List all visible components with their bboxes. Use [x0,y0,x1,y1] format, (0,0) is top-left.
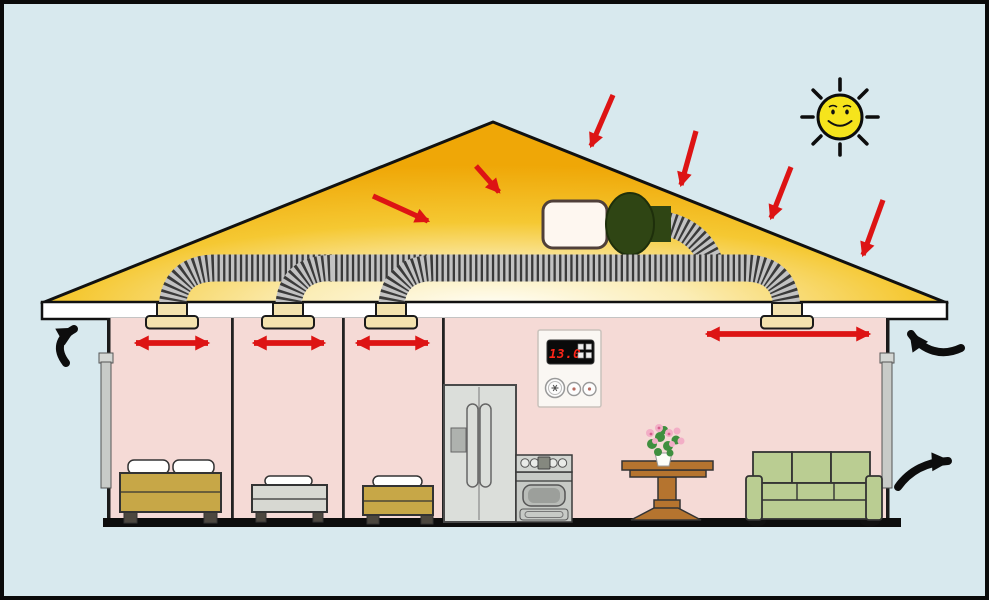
bed-leg [256,512,266,522]
bed-leg [124,512,137,523]
sofa-seat [760,483,870,519]
fan-housing-box [543,201,607,248]
attic-fan [606,193,654,255]
bed-leg [313,512,323,522]
thermostat-button-dot [572,387,575,390]
sun-eye [831,110,835,115]
burner-knob [521,459,529,467]
bed-leg [204,512,217,523]
table-pedestal [658,477,676,503]
thermostat-mini-button[interactable] [578,353,584,359]
left-downspout [99,353,113,488]
downspout-pipe [101,362,111,488]
thermostat-mini-button[interactable] [586,344,592,350]
sofa-back-cushion [792,452,831,483]
ceiling-vent-register [146,316,198,329]
house-cooling-diagram: 13.0 [0,0,989,600]
ceiling-vent-register [365,316,417,329]
thermostat: 13.0 [538,330,601,407]
pillow [128,460,169,474]
thermostat-display: 13.0 [549,346,581,361]
diagram-stage: 13.0 [0,0,989,600]
fridge-dispenser [451,428,466,452]
stove-drawer [520,509,568,520]
ceiling-vent-neck [772,303,802,317]
stove [516,455,572,522]
sofa-armrest [746,476,762,520]
oven-window-glass [528,488,560,503]
burner-knob [558,459,566,467]
thermostat-button-dot [588,387,591,390]
fridge-handle [480,404,491,487]
downspout-pipe [882,362,892,488]
thermostat-mini-button[interactable] [586,353,592,359]
right-downspout [880,353,894,488]
burner-knob [530,459,538,467]
interior-wall-2 [342,318,345,519]
ceiling-vent-neck [376,303,406,317]
interior-wall-1 [231,318,234,519]
pillow [173,460,214,474]
sofa-armrest [866,476,882,520]
refrigerator [444,385,516,522]
sofa [746,452,882,527]
ceiling-vent-neck [273,303,303,317]
sun-eye [845,110,849,115]
ceiling-vent-register [262,316,314,329]
stove-control-panel [538,457,550,469]
ceiling-vent-register [761,316,813,329]
sun-face [818,95,862,139]
thermostat-mini-button[interactable] [578,344,584,350]
sofa-back-cushion [831,452,870,483]
fridge-handle [467,404,478,487]
ceiling-vent-neck [157,303,187,317]
table-apron [630,470,706,477]
sun [818,95,862,139]
